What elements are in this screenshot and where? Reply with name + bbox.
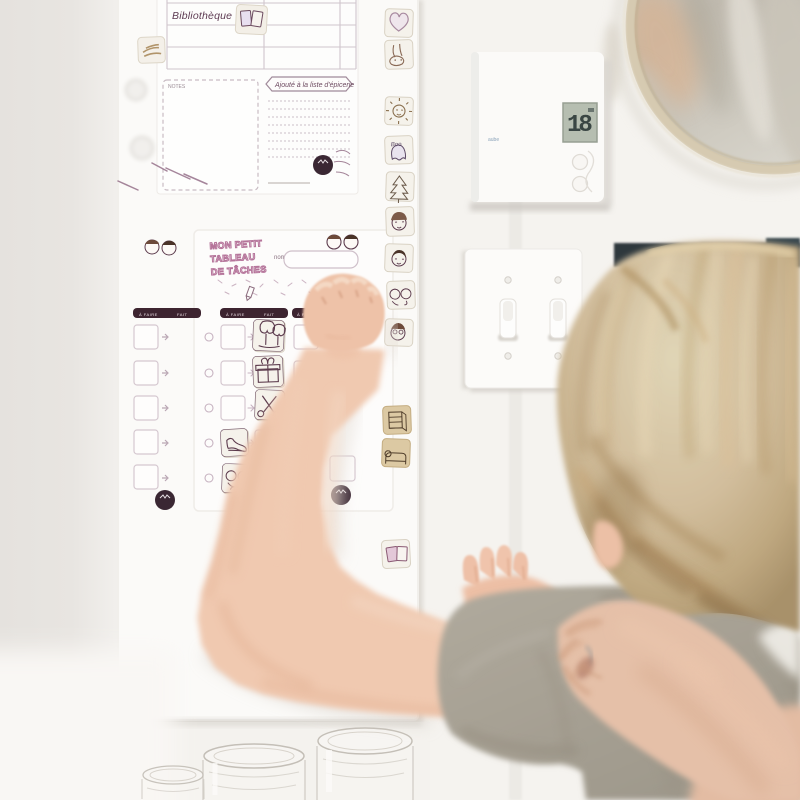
svg-text:NOTES: NOTES: [168, 84, 186, 90]
svg-text:aube: aube: [488, 137, 499, 143]
svg-text:FAIT: FAIT: [177, 312, 188, 317]
svg-text:À FAIRE: À FAIRE: [139, 312, 158, 317]
svg-text:Boo: Boo: [391, 142, 403, 148]
svg-text:À FAIRE: À FAIRE: [226, 312, 245, 317]
svg-text:18: 18: [567, 112, 592, 139]
svg-text:FAIT: FAIT: [264, 312, 275, 317]
svg-text:Ajouté à la liste d'épicerie: Ajouté à la liste d'épicerie: [274, 82, 354, 89]
svg-text:Bibliothèque: Bibliothèque: [172, 10, 232, 22]
